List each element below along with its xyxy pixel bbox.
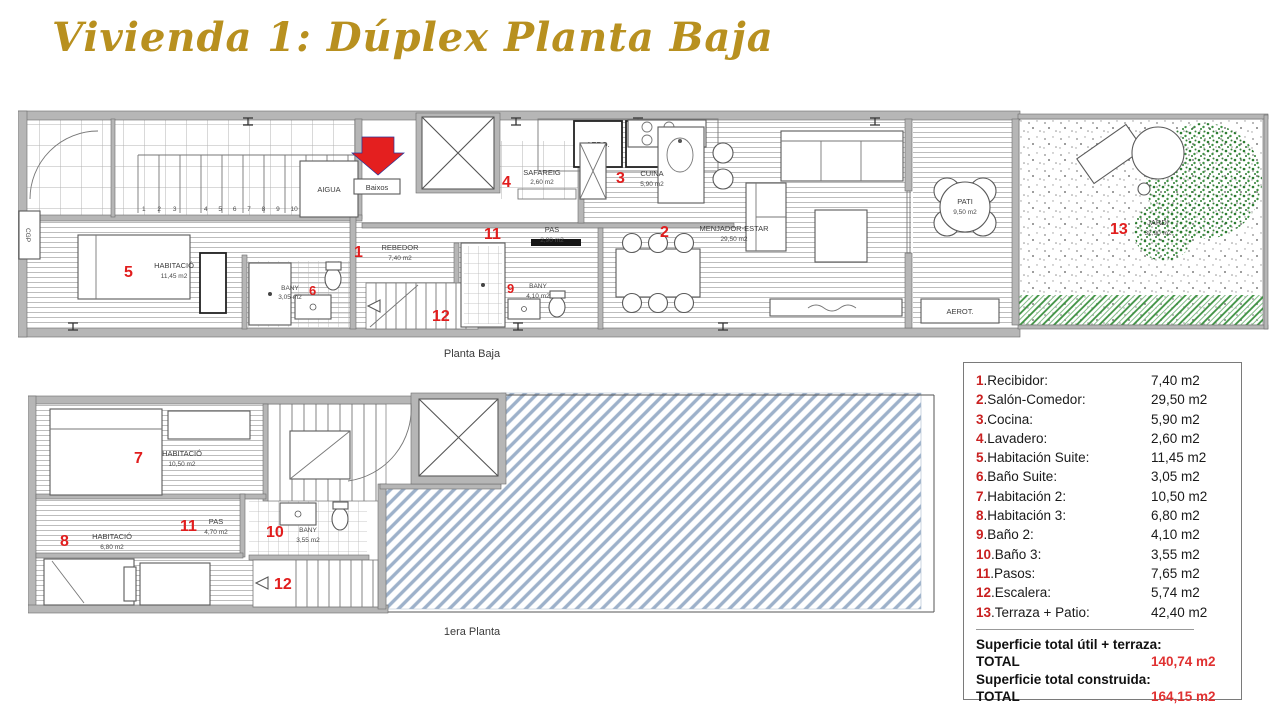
total-util-row: TOTAL140,74 m2 [976, 653, 1229, 671]
room-num-3: 3 [616, 170, 625, 187]
caption-planta-baja: Planta Baja [362, 348, 582, 360]
legend-row: 7.Habitación 2:10,50 m2 [976, 487, 1229, 506]
bany9-area: 4,10 m2 [526, 293, 550, 300]
rebedor-label: REBEDOR [381, 243, 419, 252]
patio-table [934, 178, 996, 236]
cuina-area: 5,90 m2 [640, 181, 664, 188]
jardi-label: JARDÍ [1147, 218, 1170, 227]
hab8-label: HABITACIÓ [92, 532, 132, 541]
caption-1era-planta: 1era Planta [362, 626, 582, 638]
summary-label-util: Superficie total útil + terraza: [976, 636, 1229, 654]
baixos-label: Baixos [366, 183, 389, 192]
room-num-8: 8 [60, 533, 69, 550]
grass-strip [1019, 295, 1263, 325]
step-numbers-b: 4 5 6 7 8 9 10 [204, 206, 298, 213]
cuina-label: CUINA [640, 169, 663, 178]
legend-row: 13.Terraza + Patio:42,40 m2 [976, 603, 1229, 622]
aerot-label: AEROT. [946, 307, 973, 316]
bany9-label: BANY [529, 283, 547, 290]
primera-planta-plan: 7 HABITACIÓ 10,50 m2 8 HABITACIÓ 6,80 m2… [28, 391, 940, 625]
room-num-2: 2 [660, 224, 669, 241]
legend-row: 11.Pasos:7,65 m2 [976, 564, 1229, 583]
page: Vivienda 1: Dúplex Planta Baja [0, 0, 1287, 720]
room-num-12: 12 [432, 308, 450, 325]
bany10-area: 3,55 m2 [296, 537, 320, 544]
legend-divider [976, 629, 1194, 630]
legend-row: 1.Recibidor:7,40 m2 [976, 371, 1229, 390]
room-num-6: 6 [309, 283, 316, 298]
pas-pp-label: PAS [209, 517, 223, 526]
legend-row: 6.Baño Suite:3,05 m2 [976, 467, 1229, 486]
pati-label: PATI [957, 197, 973, 206]
upper-stairwell [268, 404, 386, 501]
safareig-label: SAFAREIG [523, 168, 561, 177]
menjador-area: 29,50 m2 [720, 236, 747, 243]
room-num-10: 10 [266, 524, 284, 541]
hab7-label: HABITACIÓ [162, 449, 202, 458]
pati-area: 9,50 m2 [953, 209, 977, 216]
room-num-12-pp: 12 [274, 576, 292, 593]
legend-row: 10.Baño 3:3,55 m2 [976, 545, 1229, 564]
page-title: Vivienda 1: Dúplex Planta Baja [52, 14, 774, 61]
room-num-11-pp: 11 [180, 518, 197, 535]
room-num-13: 13 [1110, 221, 1128, 238]
planta-baja-plan: 1 2 3 4 5 6 7 8 9 10 AIGUA Baixos AERO. … [18, 103, 1270, 345]
room-num-4: 4 [502, 174, 511, 191]
legend-row: 4.Lavadero:2,60 m2 [976, 429, 1229, 448]
hab5-label: HABITACIÓ [154, 261, 194, 270]
total-construida-row: TOTAL164,15 m2 [976, 688, 1229, 706]
summary-label-construida: Superficie total construida: [976, 671, 1229, 689]
room-num-5: 5 [124, 264, 133, 281]
room-num-1: 1 [354, 244, 363, 261]
aigua-label: AIGUA [317, 185, 340, 194]
pantry-cabinet [580, 143, 606, 199]
step-numbers-a: 1 2 3 [142, 206, 177, 213]
legend-row: 5.Habitación Suite:11,45 m2 [976, 448, 1229, 467]
pas-pp-area: 4,70 m2 [204, 529, 228, 536]
room-num-11: 11 [484, 226, 501, 243]
bany10-label: BANY [299, 527, 317, 534]
jardi-area: 32,90 m2 [1144, 230, 1171, 237]
hab5-area: 11,45 m2 [161, 273, 188, 280]
hab7-area: 10,50 m2 [168, 461, 195, 468]
legend-row: 9.Baño 2:4,10 m2 [976, 525, 1229, 544]
bany6-area: 3,05 m2 [278, 294, 302, 301]
bany6-label: BANY [281, 285, 299, 292]
legend-row: 12.Escalera:5,74 m2 [976, 583, 1229, 602]
legend-row: 3.Cocina:5,90 m2 [976, 410, 1229, 429]
room-num-7: 7 [134, 450, 143, 467]
pas-label: PAS [545, 225, 559, 234]
elevator [416, 113, 500, 193]
legend-panel: 1.Recibidor:7,40 m2 2.Salón-Comedor:29,5… [963, 362, 1242, 700]
beds8 [44, 559, 210, 605]
hab8-area: 6,80 m2 [100, 544, 124, 551]
garden [1019, 119, 1263, 325]
legend-row: 8.Habitación 3:6,80 m2 [976, 506, 1229, 525]
safareig-area: 2,60 m2 [530, 179, 554, 186]
cgp-label: CGP [24, 228, 31, 242]
stairs-12-pp [253, 560, 378, 607]
legend-row: 2.Salón-Comedor:29,50 m2 [976, 390, 1229, 409]
room-num-9: 9 [507, 281, 514, 296]
rebedor-area: 7,40 m2 [388, 255, 412, 262]
menjador-label: MENJADOR-ESTAR [699, 224, 769, 233]
pas-area: 2,90 m2 [540, 237, 564, 244]
